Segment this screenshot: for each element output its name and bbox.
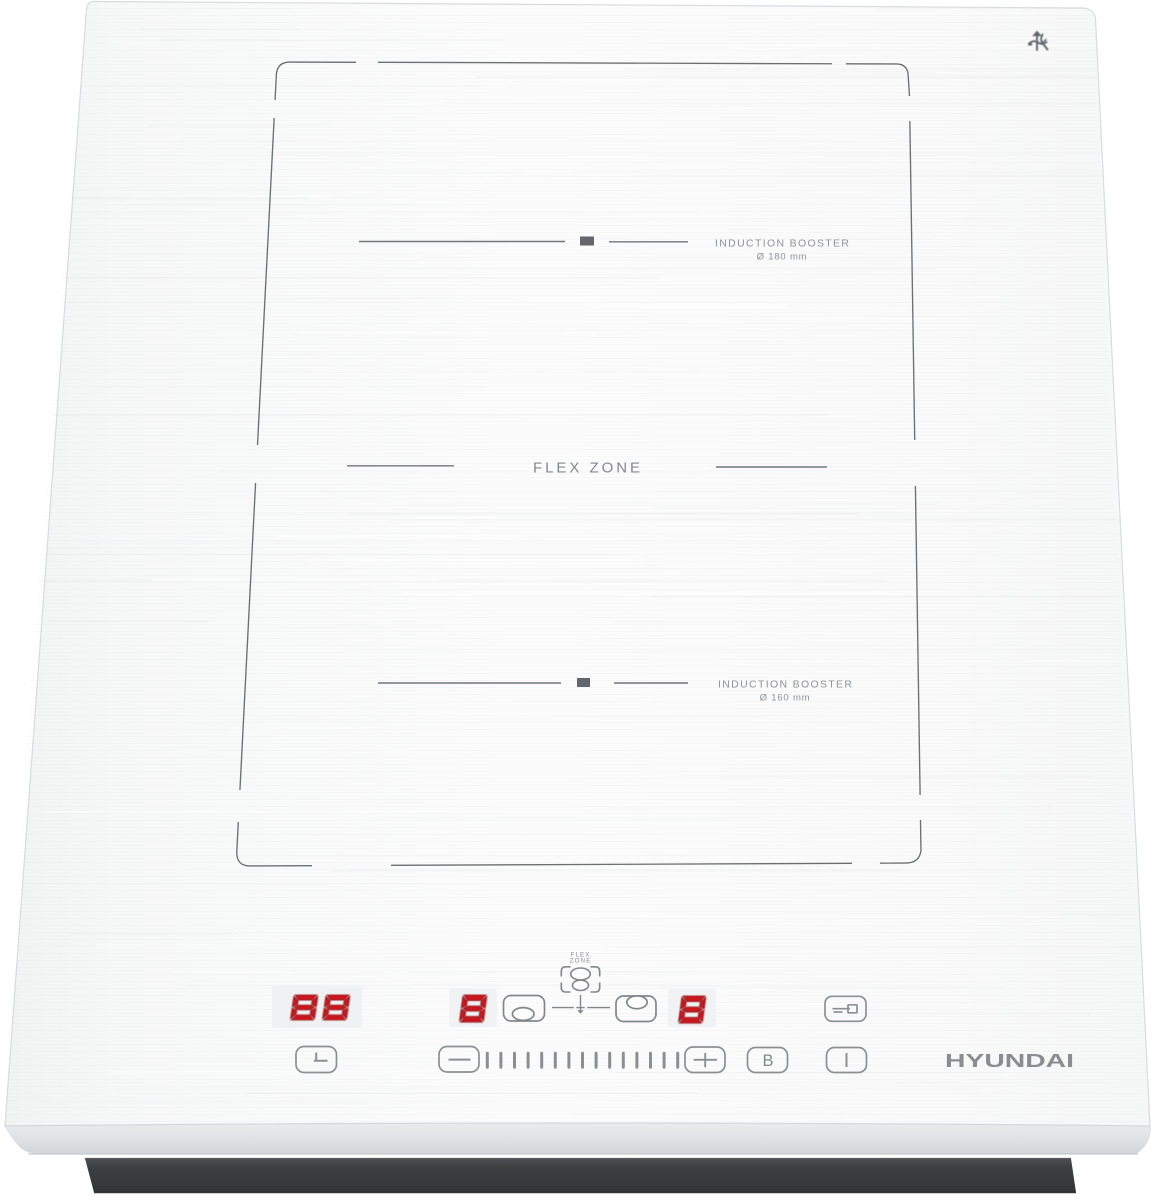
- svg-text:FLEX ZONE: FLEX ZONE: [533, 460, 640, 477]
- svg-text:INDUCTION BOOSTER: INDUCTION BOOSTER: [718, 679, 852, 691]
- svg-text:Ø 180 mm: Ø 180 mm: [757, 252, 808, 263]
- svg-text:INDUCTION BOOSTER: INDUCTION BOOSTER: [715, 238, 849, 250]
- svg-text:ZONE: ZONE: [570, 958, 592, 965]
- svg-text:Ø 160 mm: Ø 160 mm: [760, 693, 811, 704]
- svg-text:B: B: [762, 1052, 773, 1070]
- svg-text:HYUNDAI: HYUNDAI: [945, 1051, 1074, 1071]
